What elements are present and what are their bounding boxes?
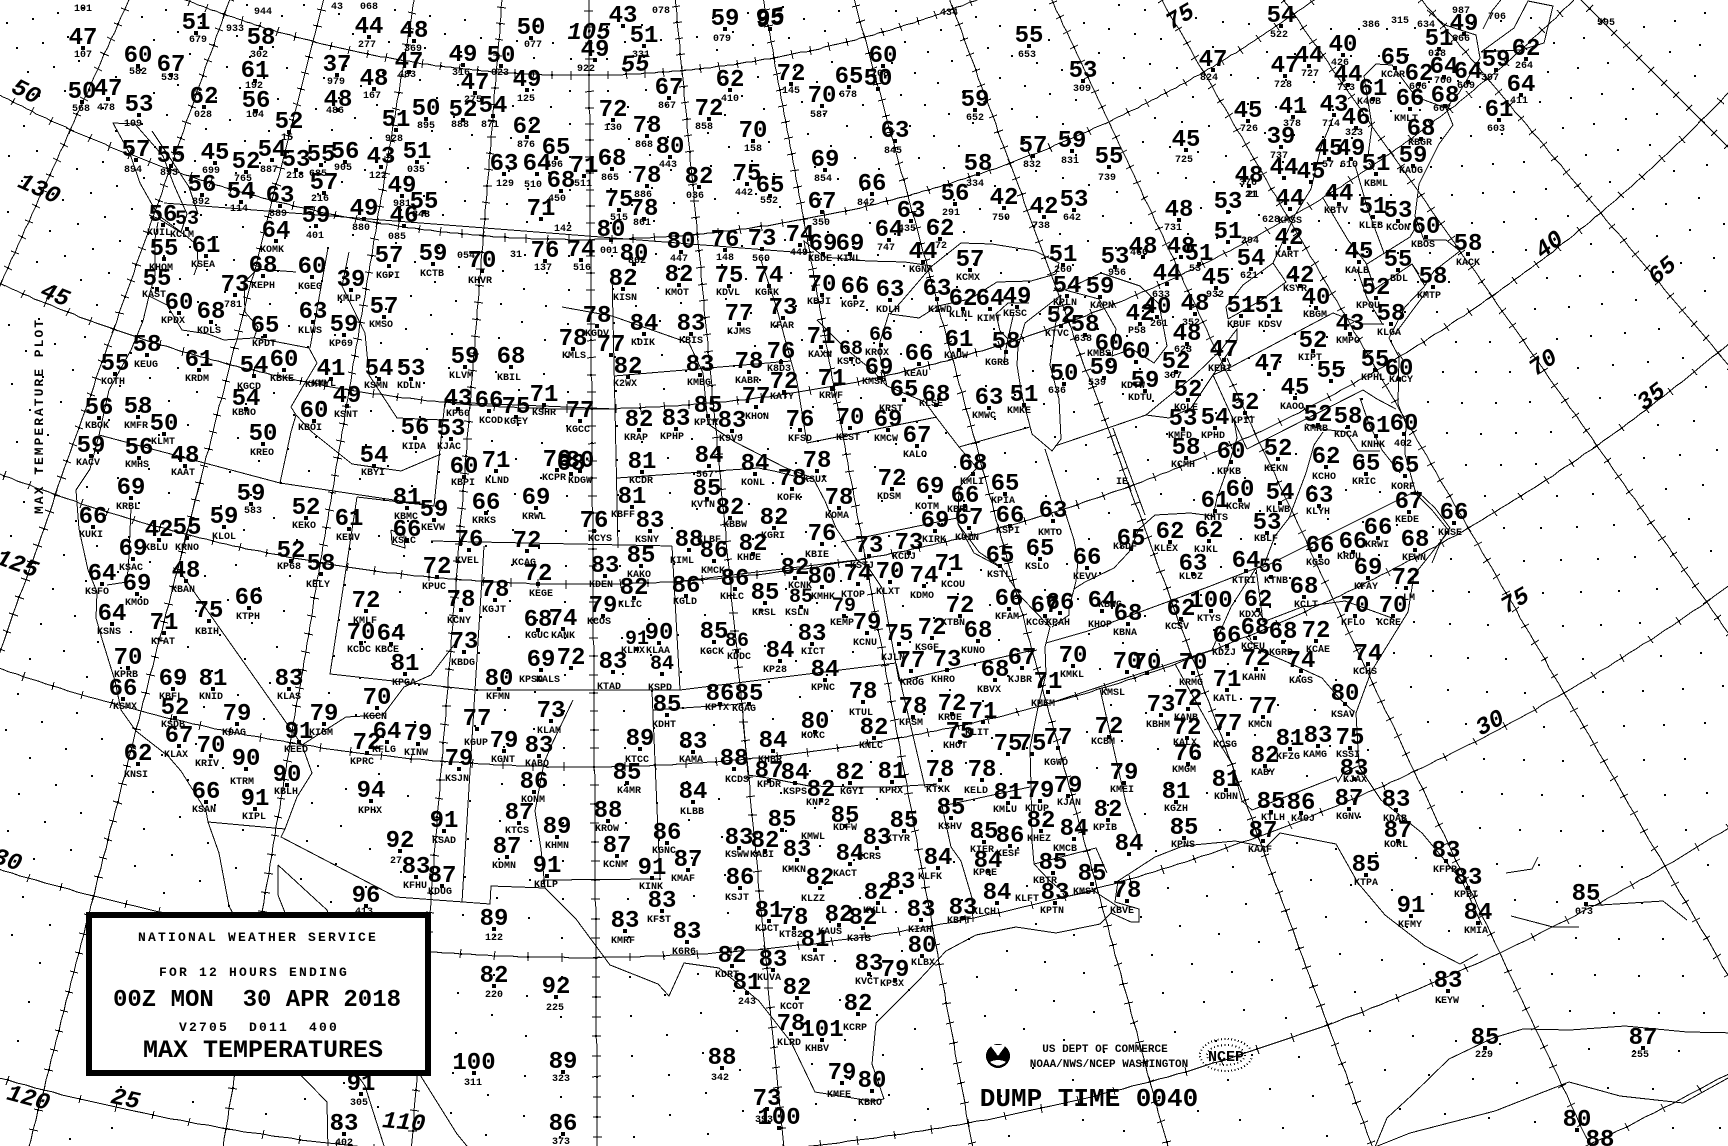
svg-text:397: 397	[1481, 73, 1499, 84]
svg-text:636: 636	[1048, 386, 1066, 397]
svg-text:KEKN: KEKN	[1264, 464, 1288, 475]
svg-text:KDGW: KDGW	[568, 476, 592, 487]
svg-text:KUKI: KUKI	[79, 530, 103, 541]
svg-text:331: 331	[632, 50, 650, 61]
svg-text:KHSE: KHSE	[1438, 528, 1462, 539]
svg-text:KMSL: KMSL	[1101, 688, 1125, 699]
svg-text:KDHN: KDHN	[1214, 792, 1238, 803]
svg-text:KBDE: KBDE	[808, 254, 832, 265]
svg-text:BDL: BDL	[1390, 274, 1408, 285]
svg-text:KGAG: KGAG	[732, 704, 756, 715]
svg-text:KHON: KHON	[745, 412, 769, 423]
svg-text:KSTL: KSTL	[987, 570, 1011, 581]
svg-text:KPNC: KPNC	[811, 683, 835, 694]
svg-text:KLOL: KLOL	[212, 532, 236, 543]
svg-text:KFLO: KFLO	[1341, 618, 1365, 629]
svg-text:88: 88	[1586, 1127, 1615, 1146]
svg-text:KDAG: KDAG	[222, 728, 246, 739]
svg-text:410: 410	[721, 94, 739, 105]
svg-text:K4MR: K4MR	[617, 786, 641, 797]
svg-text:876: 876	[517, 140, 535, 151]
svg-text:315: 315	[1391, 16, 1409, 27]
svg-text:401: 401	[306, 231, 324, 242]
svg-text:679: 679	[189, 35, 207, 46]
svg-text:KBOK: KBOK	[85, 421, 109, 432]
svg-text:KGRB: KGRB	[985, 358, 1009, 369]
svg-text:KPRC: KPRC	[350, 757, 374, 768]
svg-text:KRAP: KRAP	[624, 433, 648, 444]
svg-text:KCOU: KCOU	[941, 580, 965, 591]
svg-text:KFAT: KFAT	[151, 637, 175, 648]
svg-text:373: 373	[552, 1137, 570, 1146]
svg-text:583: 583	[244, 506, 262, 517]
svg-text:KMSY: KMSY	[1073, 887, 1097, 898]
svg-text:114: 114	[230, 204, 248, 215]
svg-text:KPDX: KPDX	[161, 316, 185, 327]
svg-text:726: 726	[1240, 124, 1258, 135]
svg-text:KRDM: KRDM	[185, 374, 209, 385]
svg-text:KUIN: KUIN	[955, 533, 979, 544]
svg-text:KSMN: KSMN	[364, 381, 388, 392]
svg-text:894: 894	[124, 165, 142, 176]
svg-text:KEED: KEED	[284, 745, 308, 756]
svg-text:KCRS: KCRS	[857, 852, 881, 863]
svg-text:KPHX: KPHX	[358, 806, 382, 817]
svg-text:483: 483	[398, 70, 416, 81]
svg-text:KGYI: KGYI	[840, 787, 864, 798]
svg-text:KEUG: KEUG	[134, 360, 158, 371]
svg-text:KAGS: KAGS	[1289, 676, 1313, 687]
svg-text:KLGA: KLGA	[1377, 328, 1401, 339]
svg-text:KLRD: KLRD	[777, 1038, 801, 1049]
svg-text:KP69: KP69	[329, 339, 353, 350]
svg-text:KLEX: KLEX	[1154, 544, 1178, 555]
svg-text:KBNO: KBNO	[232, 408, 256, 419]
svg-text:KBNA: KBNA	[1113, 628, 1137, 639]
svg-text:KEPH: KEPH	[251, 281, 275, 292]
svg-text:229: 229	[1475, 1050, 1493, 1061]
svg-text:101: 101	[74, 4, 92, 15]
svg-text:KLOZ: KLOZ	[1179, 572, 1203, 583]
svg-text:068: 068	[360, 2, 378, 13]
svg-text:933: 933	[226, 24, 244, 35]
svg-text:125: 125	[517, 94, 535, 105]
svg-text:145: 145	[782, 86, 800, 97]
svg-text:KLBX: KLBX	[911, 958, 935, 969]
svg-text:582: 582	[129, 67, 147, 78]
svg-text:31: 31	[510, 250, 522, 261]
svg-text:944: 944	[254, 7, 272, 18]
svg-text:KBLF: KBLF	[1254, 534, 1278, 545]
svg-text:KREO: KREO	[250, 448, 274, 459]
svg-text:KHVR: KHVR	[468, 276, 492, 287]
svg-text:KMKL: KMKL	[1060, 670, 1084, 681]
svg-text:KMTP: KMTP	[1417, 291, 1441, 302]
svg-text:KSPI: KSPI	[996, 526, 1020, 537]
svg-text:731: 731	[1164, 223, 1182, 234]
svg-text:21: 21	[1245, 190, 1257, 201]
svg-text:KUNO: KUNO	[961, 646, 985, 657]
svg-text:KBIS: KBIS	[679, 336, 703, 347]
svg-text:IE: IE	[1116, 477, 1128, 488]
svg-text:KDFW: KDFW	[833, 823, 857, 834]
svg-text:KBOS: KBOS	[1411, 240, 1435, 251]
svg-text:738: 738	[1032, 221, 1050, 232]
svg-text:714: 714	[1322, 119, 1340, 130]
svg-text:KMRF: KMRF	[611, 936, 635, 947]
svg-text:KGSO: KGSO	[1306, 558, 1330, 569]
svg-text:KFSD: KFSD	[788, 434, 812, 445]
svg-text:K40J: K40J	[1291, 814, 1315, 825]
svg-text:350: 350	[812, 218, 830, 229]
svg-text:KPSX: KPSX	[880, 979, 904, 990]
svg-text:KEGE: KEGE	[529, 589, 553, 600]
svg-text:KRWF: KRWF	[819, 391, 843, 402]
svg-text:893: 893	[160, 168, 178, 179]
svg-text:KLAX: KLAX	[164, 750, 188, 761]
svg-text:KATY: KATY	[770, 392, 794, 403]
svg-text:KDEN: KDEN	[589, 580, 613, 591]
svg-text:KMLC: KMLC	[859, 741, 883, 752]
svg-text:KHLC: KHLC	[720, 592, 744, 603]
svg-text:KLYH: KLYH	[1306, 507, 1330, 518]
svg-text:KDTW: KDTW	[1121, 381, 1145, 392]
svg-text:KMLP: KMLP	[337, 294, 361, 305]
svg-text:595: 595	[1597, 18, 1615, 29]
svg-text:KBRO: KBRO	[858, 1098, 882, 1109]
svg-text:865: 865	[601, 173, 619, 184]
svg-text:KHOP: KHOP	[1088, 620, 1112, 631]
svg-text:KGPI: KGPI	[376, 271, 400, 282]
svg-text:KBPI: KBPI	[451, 478, 475, 489]
svg-text:402: 402	[335, 1138, 353, 1146]
svg-text:KDHT: KDHT	[652, 720, 676, 731]
svg-text:KTVC: KTVC	[1045, 329, 1069, 340]
svg-text:KAXN: KAXN	[808, 350, 832, 361]
svg-text:KDIK: KDIK	[631, 338, 655, 349]
svg-text:KDSM: KDSM	[877, 492, 901, 503]
svg-text:KCRE: KCRE	[1377, 618, 1401, 629]
svg-text:KSPS: KSPS	[783, 787, 807, 798]
svg-text:KPNS: KPNS	[1171, 840, 1195, 851]
svg-text:KTNB: KTNB	[1264, 576, 1288, 587]
svg-text:706: 706	[1488, 12, 1506, 23]
svg-text:516: 516	[573, 263, 591, 274]
svg-text:KIRK: KIRK	[922, 535, 946, 546]
svg-text:KATL: KATL	[1213, 694, 1237, 705]
svg-text:831: 831	[1061, 156, 1079, 167]
svg-text:KHOT: KHOT	[943, 741, 967, 752]
svg-text:KMRB: KMRB	[1304, 424, 1328, 435]
svg-text:887: 887	[260, 165, 278, 176]
svg-text:K3TS: K3TS	[847, 934, 871, 945]
svg-text:KDMO: KDMO	[910, 591, 934, 602]
svg-text:KFST: KFST	[647, 915, 671, 926]
svg-text:KMKE: KMKE	[1007, 406, 1031, 417]
svg-text:KROG: KROG	[900, 678, 924, 689]
svg-text:KCYS: KCYS	[588, 534, 612, 545]
svg-text:305: 305	[350, 1098, 368, 1109]
svg-text:129: 129	[496, 179, 514, 190]
svg-text:739: 739	[1098, 173, 1116, 184]
svg-text:KHMN: KHMN	[545, 841, 569, 852]
svg-text:137: 137	[534, 263, 552, 274]
svg-text:KHRO: KHRO	[931, 675, 955, 686]
svg-text:122: 122	[369, 171, 387, 182]
svg-text:KRKS: KRKS	[472, 516, 496, 527]
svg-text:109: 109	[124, 119, 142, 130]
svg-text:638: 638	[1074, 334, 1092, 345]
svg-text:NATIONAL WEATHER SERVICE: NATIONAL WEATHER SERVICE	[138, 930, 378, 945]
svg-text:861: 861	[633, 218, 651, 229]
svg-text:KTRI: KTRI	[1232, 576, 1256, 587]
svg-text:277: 277	[358, 40, 376, 51]
svg-text:KELD: KELD	[964, 786, 988, 797]
svg-text:KFAR: KFAR	[770, 321, 794, 332]
svg-text:510: 510	[524, 180, 542, 191]
svg-text:KSLN: KSLN	[785, 608, 809, 619]
svg-text:KBJI: KBJI	[807, 297, 831, 308]
svg-text:KFSM: KFSM	[899, 718, 923, 729]
svg-text:KDLH: KDLH	[876, 305, 900, 316]
svg-text:KP68: KP68	[277, 562, 301, 573]
svg-text:KPAH: KPAH	[1046, 618, 1070, 629]
svg-text:KBVX: KBVX	[977, 685, 1001, 696]
svg-text:KJBR: KJBR	[1008, 675, 1032, 686]
svg-text:KGEG: KGEG	[298, 282, 322, 293]
svg-text:KOKC: KOKC	[801, 731, 825, 742]
svg-text:KAUW: KAUW	[944, 351, 968, 362]
svg-text:V2705 D011 400: V2705 D011 400	[179, 1020, 339, 1035]
svg-text:443: 443	[659, 160, 677, 171]
svg-text:KGZH: KGZH	[1164, 804, 1188, 815]
svg-text:832: 832	[1023, 160, 1041, 171]
svg-text:130: 130	[604, 123, 622, 134]
svg-text:KCDS: KCDS	[725, 775, 749, 786]
svg-text:KLNL: KLNL	[949, 310, 973, 321]
svg-text:KMCN: KMCN	[1248, 720, 1272, 731]
svg-text:KTAD: KTAD	[597, 682, 621, 693]
svg-text:KPOE: KPOE	[973, 868, 997, 879]
svg-text:KJAC: KJAC	[437, 442, 461, 453]
svg-text:KDZJ: KDZJ	[1212, 648, 1236, 659]
svg-text:KCOS: KCOS	[587, 617, 611, 628]
svg-text:KEWN: KEWN	[1402, 553, 1426, 564]
svg-text:KMSP: KMSP	[862, 377, 886, 388]
svg-text:KDDC: KDDC	[727, 652, 751, 663]
svg-text:054: 054	[457, 251, 475, 262]
svg-text:678: 678	[839, 90, 857, 101]
svg-text:KELY: KELY	[306, 580, 330, 591]
svg-text:KNF2: KNF2	[806, 798, 830, 809]
svg-text:KGWO: KGWO	[1044, 758, 1068, 769]
svg-text:552: 552	[760, 196, 778, 207]
svg-text:KLSE: KLSE	[919, 399, 943, 410]
svg-text:KPSO: KPSO	[519, 675, 543, 686]
svg-text:KEST: KEST	[836, 433, 860, 444]
svg-text:522: 522	[1270, 30, 1288, 41]
svg-text:KBGM: KBGM	[1303, 310, 1327, 321]
svg-text:KBOI: KBOI	[298, 423, 322, 434]
svg-text:NCEP: NCEP	[1208, 1049, 1244, 1066]
svg-text:KNHK: KNHK	[1361, 440, 1385, 451]
svg-text:KSAD: KSAD	[432, 836, 456, 847]
svg-text:KCSG: KCSG	[1213, 740, 1237, 751]
svg-text:KSWW: KSWW	[725, 850, 749, 861]
svg-text:KSAT: KSAT	[801, 954, 825, 965]
svg-text:KFZG: KFZG	[1276, 752, 1300, 763]
svg-text:KPIR: KPIR	[694, 418, 718, 429]
svg-text:KAAT: KAAT	[171, 468, 195, 479]
svg-text:533: 533	[161, 73, 179, 84]
svg-text:078: 078	[652, 6, 670, 17]
svg-text:KRIV: KRIV	[195, 759, 219, 770]
svg-text:KBML: KBML	[1364, 179, 1388, 190]
svg-text:KLEB: KLEB	[1359, 221, 1383, 232]
svg-text:KDSV: KDSV	[1258, 320, 1282, 331]
svg-text:077: 077	[524, 40, 542, 51]
svg-text:KMBS: KMBS	[1087, 349, 1111, 360]
svg-text:KJMS: KJMS	[727, 327, 751, 338]
svg-text:KPHL: KPHL	[1361, 373, 1385, 384]
svg-text:KEMP: KEMP	[830, 618, 854, 629]
svg-text:073: 073	[1575, 907, 1593, 918]
svg-text:666: 666	[1452, 34, 1470, 45]
svg-text:KOFK: KOFK	[777, 493, 801, 504]
svg-text:KMFR: KMFR	[124, 421, 148, 432]
svg-text:KGNA: KGNA	[909, 265, 933, 276]
svg-text:KLBB: KLBB	[680, 807, 704, 818]
svg-text:KAPN: KAPN	[1090, 301, 1114, 312]
svg-text:225: 225	[546, 1003, 564, 1014]
svg-text:142: 142	[554, 224, 572, 235]
svg-text:KDCA: KDCA	[1334, 430, 1358, 441]
svg-text:KIDA: KIDA	[402, 442, 426, 453]
svg-text:KBDG: KBDG	[451, 658, 475, 669]
svg-text:KSAN: KSAN	[192, 805, 216, 816]
svg-text:243: 243	[738, 997, 756, 1008]
svg-text:309: 309	[1073, 84, 1091, 95]
svg-text:KBKE: KBKE	[270, 374, 294, 385]
svg-text:KBFF: KBFF	[611, 510, 635, 521]
svg-text:KJAX: KJAX	[1343, 775, 1367, 786]
svg-text:028: 028	[194, 110, 212, 121]
svg-text:634: 634	[1417, 20, 1435, 31]
svg-text:KACY: KACY	[1389, 375, 1413, 386]
svg-text:KCMH: KCMH	[1171, 460, 1195, 471]
svg-text:KALO: KALO	[903, 450, 927, 461]
svg-text:KGNV: KGNV	[1336, 812, 1360, 823]
svg-text:KSHV: KSHV	[938, 822, 962, 833]
svg-text:KDTU: KDTU	[1128, 393, 1152, 404]
svg-text:824: 824	[1200, 73, 1218, 84]
svg-text:KCTB: KCTB	[420, 269, 444, 280]
svg-text:KNSI: KNSI	[124, 770, 148, 781]
svg-text:KSLO: KSLO	[1025, 562, 1049, 573]
svg-text:KHEZ: KHEZ	[1027, 834, 1051, 845]
svg-text:KAAF: KAAF	[1248, 845, 1272, 856]
svg-text:KJAN: KJAN	[1057, 798, 1081, 809]
svg-text:987: 987	[1452, 6, 1470, 17]
svg-text:KBUF: KBUF	[1227, 320, 1251, 331]
svg-text:KGNT: KGNT	[491, 755, 515, 766]
svg-text:KPYX: KPYX	[705, 703, 729, 714]
svg-text:KMWC: KMWC	[972, 411, 996, 422]
svg-text:023: 023	[491, 68, 509, 79]
svg-text:KFDR: KFDR	[757, 780, 781, 791]
svg-text:KSMX: KSMX	[113, 702, 137, 713]
svg-text:264: 264	[1515, 61, 1533, 72]
svg-text:00Z MON 30 APR 2018: 00Z MON 30 APR 2018	[113, 987, 401, 1014]
svg-text:KMIA: KMIA	[1464, 926, 1488, 937]
svg-text:KSLC: KSLC	[392, 536, 416, 547]
svg-text:NOAA/NWS/NCEP WASHINGTON: NOAA/NWS/NCEP WASHINGTON	[1030, 1059, 1188, 1071]
svg-text:KMLS: KMLS	[562, 351, 586, 362]
svg-text:KDUG: KDUG	[428, 887, 452, 898]
svg-text:KMTL: KMTL	[305, 380, 329, 391]
svg-text:KACK: KACK	[1456, 258, 1480, 269]
svg-text:K2WX: K2WX	[613, 379, 637, 390]
svg-text:KCNY: KCNY	[447, 616, 471, 627]
svg-text:376: 376	[1239, 178, 1257, 189]
svg-text:MAX TEMPERATURES: MAX TEMPERATURES	[143, 1036, 383, 1065]
svg-text:KCRP: KCRP	[843, 1023, 867, 1034]
svg-text:KOTH: KOTH	[101, 377, 125, 388]
svg-text:KPHP: KPHP	[660, 432, 684, 443]
svg-text:KMAF: KMAF	[671, 874, 695, 885]
svg-text:KFAY: KFAY	[1354, 582, 1378, 593]
svg-text:KONL: KONL	[741, 478, 765, 489]
svg-text:KPIT: KPIT	[1231, 416, 1255, 427]
svg-text:568: 568	[72, 104, 90, 115]
svg-text:KBBW: KBBW	[723, 520, 747, 531]
svg-text:KPGA: KPGA	[392, 678, 416, 689]
svg-text:KAMA: KAMA	[679, 755, 703, 766]
svg-text:036: 036	[686, 191, 704, 202]
svg-text:104: 104	[246, 110, 264, 121]
svg-text:KBIH: KBIH	[195, 627, 219, 638]
svg-text:KMHS: KMHS	[125, 460, 149, 471]
svg-text:KABY: KABY	[1251, 768, 1275, 779]
svg-text:KCRW: KCRW	[1226, 502, 1250, 513]
svg-text:KLFK: KLFK	[918, 872, 942, 883]
svg-text:KPTN: KPTN	[1040, 906, 1064, 917]
svg-text:KGCK: KGCK	[700, 647, 724, 658]
svg-text:539: 539	[1088, 378, 1106, 389]
svg-text:FOR 12 HOURS ENDING: FOR 12 HOURS ENDING	[159, 965, 349, 980]
svg-text:53: 53	[1189, 264, 1201, 275]
svg-text:KCOD: KCOD	[479, 416, 503, 427]
svg-text:KPUC: KPUC	[422, 582, 446, 593]
svg-text:KORL: KORL	[1384, 840, 1408, 851]
svg-text:KDMN: KDMN	[492, 861, 516, 872]
svg-text:KMFE: KMFE	[827, 1090, 851, 1101]
svg-text:867: 867	[658, 101, 676, 112]
svg-text:KBYI: KBYI	[361, 468, 385, 479]
svg-text:110: 110	[381, 1108, 426, 1139]
svg-text:KTPA: KTPA	[1354, 878, 1378, 889]
svg-text:KABI: KABI	[750, 850, 774, 861]
svg-text:KBVE: KBVE	[1110, 906, 1134, 917]
svg-text:KGJT: KGJT	[482, 605, 506, 616]
svg-text:US DEPT OF COMMERCE: US DEPT OF COMMERCE	[1042, 1044, 1168, 1056]
svg-text:449: 449	[790, 248, 808, 259]
svg-text:KCHS: KCHS	[1353, 667, 1377, 678]
svg-text:KCHO: KCHO	[1312, 472, 1336, 483]
svg-text:653: 653	[1018, 50, 1036, 61]
svg-text:KIPL: KIPL	[242, 812, 266, 823]
svg-text:KLAS: KLAS	[277, 692, 301, 703]
